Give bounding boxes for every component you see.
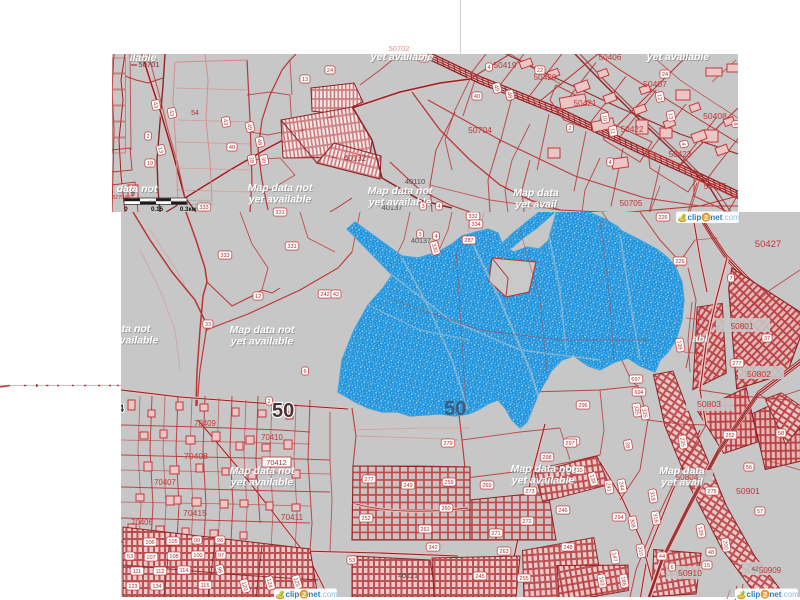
svg-text:48: 48 [708,550,714,556]
svg-text:297: 297 [565,441,574,447]
svg-text:107: 107 [146,555,155,561]
svg-text:50423: 50423 [669,150,692,159]
svg-text:279: 279 [443,441,452,447]
svg-text:50910: 50910 [678,568,702,578]
svg-text:50425: 50425 [704,182,727,191]
svg-text:249: 249 [403,483,412,489]
svg-text:273: 273 [525,489,534,495]
svg-text:48: 48 [256,139,263,146]
svg-text:data not: data not [117,183,158,195]
svg-text:Map data: Map data [513,187,559,199]
svg-text:net.com: net.com [769,590,799,599]
svg-text:334: 334 [471,222,480,228]
svg-text:275: 275 [707,489,716,495]
svg-text:255: 255 [519,576,528,582]
svg-text:10: 10 [601,115,608,122]
svg-text:42: 42 [333,292,339,298]
svg-text:252: 252 [725,433,734,439]
svg-text:277: 277 [732,361,741,367]
svg-text:2: 2 [568,126,571,132]
svg-text:54: 54 [191,110,199,117]
svg-text:clip: clip [688,213,702,222]
svg-text:53: 53 [349,558,355,564]
svg-text:50419: 50419 [494,61,517,70]
svg-text:108: 108 [169,554,178,560]
svg-text:43: 43 [222,119,229,126]
svg-text:6: 6 [303,369,306,375]
svg-text:277: 277 [364,477,373,483]
svg-text:3: 3 [418,232,421,238]
svg-text:6: 6 [670,565,673,571]
svg-text:Map data not: Map data not [230,465,295,477]
svg-text:44: 44 [659,554,665,560]
svg-text:70406: 70406 [131,518,153,527]
svg-text:12: 12 [255,294,261,300]
svg-text:70408: 70408 [184,451,208,461]
svg-text:97: 97 [218,553,224,559]
svg-text:2: 2 [267,399,270,405]
svg-text:28: 28 [248,157,255,164]
svg-text:57: 57 [757,509,763,515]
svg-text:Map data not: Map data not [368,185,433,197]
svg-text:yet avail: yet avail [514,199,558,211]
svg-text:260: 260 [441,506,450,512]
svg-text:33: 33 [205,322,211,328]
svg-text:19: 19 [147,161,153,167]
svg-text:261: 261 [420,527,429,533]
svg-text:50702: 50702 [389,44,410,53]
svg-text:332: 332 [468,214,477,220]
svg-text:105: 105 [168,539,177,545]
svg-text:333: 333 [220,253,229,259]
svg-text:4: 4 [608,160,611,166]
svg-text:clip: clip [747,590,761,599]
svg-text:yet avail: yet avail [660,477,704,489]
svg-text:50909: 50909 [759,566,782,575]
svg-text:0.3км: 0.3км [180,206,197,213]
svg-text:99: 99 [194,538,200,544]
svg-text:259: 259 [444,480,453,486]
svg-text:13: 13 [302,77,308,83]
svg-text:50422: 50422 [621,125,644,134]
svg-text:2: 2 [704,213,708,222]
svg-text:40: 40 [474,94,480,100]
svg-text:58: 58 [778,431,784,437]
svg-text:30: 30 [260,157,267,164]
svg-text:0.15: 0.15 [151,206,164,213]
svg-text:Map data: Map data [659,465,705,477]
svg-text:22: 22 [537,68,543,74]
svg-text:0: 0 [124,206,128,213]
svg-text:2: 2 [302,590,306,599]
svg-text:40: 40 [229,145,235,151]
svg-text:248: 248 [563,545,572,551]
svg-text:4: 4 [487,65,490,71]
svg-text:694: 694 [634,390,643,396]
svg-text:24: 24 [662,72,668,78]
svg-text:37: 37 [764,336,770,342]
svg-text:40121: 40121 [398,571,418,580]
svg-text:net.com: net.com [710,213,740,222]
svg-text:43: 43 [152,102,159,109]
svg-text:net.com: net.com [308,590,338,599]
svg-text:246: 246 [558,508,567,514]
svg-text:53: 53 [127,554,133,560]
svg-text:331: 331 [287,244,296,250]
svg-text:333: 333 [199,205,208,211]
svg-text:331: 331 [275,210,284,216]
svg-text:yet available: yet available [230,336,294,348]
svg-text:Map data not: Map data not [511,463,576,475]
svg-text:70409: 70409 [194,419,216,428]
svg-text:70410: 70410 [261,433,283,442]
svg-text:98: 98 [217,538,223,544]
svg-text:106: 106 [145,540,154,546]
svg-text:294: 294 [614,515,623,521]
svg-text:50802: 50802 [747,369,771,379]
svg-text:50421: 50421 [574,99,597,108]
svg-text:4: 4 [434,234,437,240]
svg-text:3: 3 [421,204,424,210]
svg-text:50801: 50801 [731,322,754,331]
svg-text:296: 296 [578,403,587,409]
svg-text:50: 50 [272,400,294,422]
svg-text:50407: 50407 [643,79,667,89]
svg-text:56: 56 [746,465,752,471]
svg-text:70415: 70415 [183,508,207,518]
svg-text:50406: 50406 [599,53,622,62]
svg-text:24: 24 [327,68,333,74]
svg-text:100: 100 [193,553,202,559]
svg-text:3270401: 3270401 [112,195,133,201]
svg-text:252: 252 [361,516,370,522]
svg-text:226: 226 [658,215,667,221]
svg-text:226: 226 [675,259,684,265]
svg-text:111: 111 [133,569,142,575]
svg-text:ta not: ta not [122,323,151,335]
svg-text:50: 50 [444,398,466,420]
svg-text:50901: 50901 [736,486,760,496]
svg-text:yet available: yet available [230,477,294,489]
svg-text:13: 13 [667,113,674,120]
svg-text:271: 271 [491,531,500,537]
svg-text:115: 115 [201,583,210,589]
svg-text:43: 43 [168,110,175,117]
svg-text:yet available: yet available [248,194,312,206]
svg-text:298: 298 [542,455,551,461]
svg-text:11: 11 [609,128,616,135]
svg-text:clip: clip [286,590,300,599]
svg-text:40132: 40132 [344,154,367,163]
svg-text:50427: 50427 [755,239,781,250]
svg-text:70411: 70411 [281,513,304,522]
svg-text:12: 12 [656,94,663,101]
svg-text:Map data not: Map data not [230,324,295,336]
svg-text:112: 112 [156,569,165,575]
svg-text:50803: 50803 [697,399,721,409]
svg-text:yet available: yet available [511,475,575,487]
svg-text:342: 342 [428,545,437,551]
svg-text:242: 242 [320,292,329,298]
svg-text:42: 42 [751,566,759,573]
svg-text:abl: abl [692,333,708,345]
svg-text:123: 123 [128,584,137,590]
svg-text:50704: 50704 [468,125,492,135]
svg-text:287: 287 [464,238,473,244]
svg-text:2: 2 [146,134,149,140]
svg-text:697: 697 [631,377,640,383]
svg-text:2: 2 [763,590,767,599]
svg-text:272: 272 [522,519,531,525]
svg-text:50705: 50705 [620,199,643,208]
svg-text:263: 263 [499,549,508,555]
svg-text:4: 4 [437,204,440,210]
svg-text:15: 15 [704,563,710,569]
svg-text:114: 114 [180,568,189,574]
svg-text:28: 28 [624,442,631,449]
svg-text:70407: 70407 [154,478,176,487]
svg-text:Map data not: Map data not [248,182,313,194]
svg-text:269: 269 [482,483,491,489]
svg-text:7: 7 [729,276,732,282]
svg-text:50408: 50408 [703,111,727,121]
svg-text:245: 245 [475,574,484,580]
svg-text:134: 134 [152,584,161,590]
